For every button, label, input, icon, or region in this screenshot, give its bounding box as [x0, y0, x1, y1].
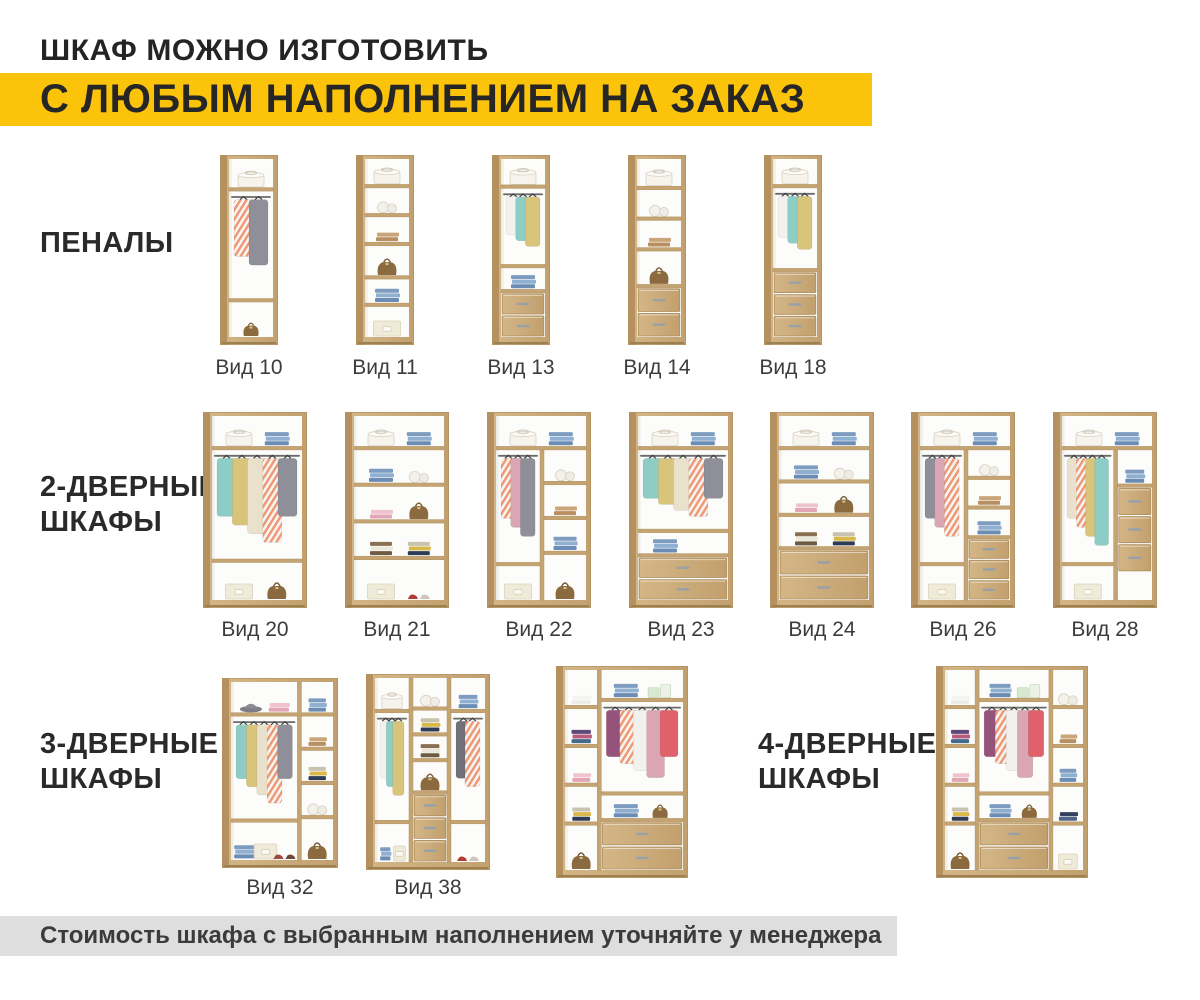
wardrobe-label: Вид 14 [598, 356, 716, 380]
catalog-poster: ШКАФ МОЖНО ИЗГОТОВИТЬ С ЛЮБЫМ НАПОЛНЕНИЕ… [0, 0, 1200, 1000]
wardrobe-вид-26 [911, 412, 1015, 608]
wardrobe-label: Вид 10 [190, 356, 308, 380]
section-title-line: 3-ДВЕРНЫЕ [40, 727, 218, 762]
headline-line1: ШКАФ МОЖНО ИЗГОТОВИТЬ [40, 34, 489, 68]
wardrobe-вид-10 [220, 155, 278, 345]
wardrobe-illustration [911, 412, 1015, 608]
wardrobe-illustration [1053, 412, 1157, 608]
wardrobe-illustration [629, 412, 733, 608]
wardrobe-illustration [936, 666, 1088, 878]
wardrobe-вид-11 [356, 155, 414, 345]
footer-note: Стоимость шкафа с выбранным наполнением … [40, 916, 881, 956]
section-title-line: ШКАФЫ [758, 762, 936, 797]
wardrobe-вид-21 [345, 412, 449, 608]
wardrobe-label: Вид 20 [173, 618, 337, 642]
wardrobe-вид-32 [222, 678, 338, 868]
wardrobe-вид-14 [628, 155, 686, 345]
headline-accent-bar: С ЛЮБЫМ НАПОЛНЕНИЕМ НА ЗАКАЗ [0, 73, 872, 126]
wardrobe-label: Вид 23 [599, 618, 763, 642]
wardrobe-illustration [556, 666, 688, 878]
wardrobe-label: Вид 18 [734, 356, 852, 380]
section-title-line: 4-ДВЕРНЫЕ [758, 727, 936, 762]
wardrobe-illustration [345, 412, 449, 608]
wardrobe-illustration [487, 412, 591, 608]
wardrobe-вид-13 [492, 155, 550, 345]
wardrobe-вид-24 [770, 412, 874, 608]
wardrobe-illustration [764, 155, 822, 345]
wardrobe-four_door-0 [936, 666, 1088, 878]
wardrobe-illustration [770, 412, 874, 608]
wardrobe-label: Вид 22 [457, 618, 621, 642]
wardrobe-illustration [628, 155, 686, 345]
wardrobe-illustration [222, 678, 338, 868]
wardrobe-three_door-2 [556, 666, 688, 878]
wardrobe-label: Вид 21 [315, 618, 479, 642]
section-title-line: ШКАФЫ [40, 762, 218, 797]
wardrobe-label: Вид 38 [336, 876, 520, 900]
section-title-penaly: ПЕНАЛЫ [40, 226, 174, 261]
section-title-two_door: 2-ДВЕРНЫЕШКАФЫ [40, 470, 218, 540]
wardrobe-illustration [203, 412, 307, 608]
wardrobe-label: Вид 28 [1023, 618, 1187, 642]
wardrobe-label: Вид 13 [462, 356, 580, 380]
headline-line2: С ЛЮБЫМ НАПОЛНЕНИЕМ НА ЗАКАЗ [40, 73, 805, 126]
section-title-line: ПЕНАЛЫ [40, 226, 174, 261]
wardrobe-label: Вид 11 [326, 356, 444, 380]
footer-note-bar: Стоимость шкафа с выбранным наполнением … [0, 916, 897, 956]
wardrobe-illustration [366, 674, 490, 870]
wardrobe-label: Вид 24 [740, 618, 904, 642]
wardrobe-illustration [492, 155, 550, 345]
wardrobe-вид-20 [203, 412, 307, 608]
wardrobe-вид-18 [764, 155, 822, 345]
section-title-line: 2-ДВЕРНЫЕ [40, 470, 218, 505]
wardrobe-вид-38 [366, 674, 490, 870]
wardrobe-label: Вид 26 [881, 618, 1045, 642]
wardrobe-illustration [220, 155, 278, 345]
section-title-three_door: 3-ДВЕРНЫЕШКАФЫ [40, 727, 218, 797]
section-title-line: ШКАФЫ [40, 505, 218, 540]
wardrobe-illustration [356, 155, 414, 345]
section-title-four_door: 4-ДВЕРНЫЕШКАФЫ [758, 727, 936, 797]
wardrobe-вид-28 [1053, 412, 1157, 608]
wardrobe-вид-22 [487, 412, 591, 608]
wardrobe-вид-23 [629, 412, 733, 608]
